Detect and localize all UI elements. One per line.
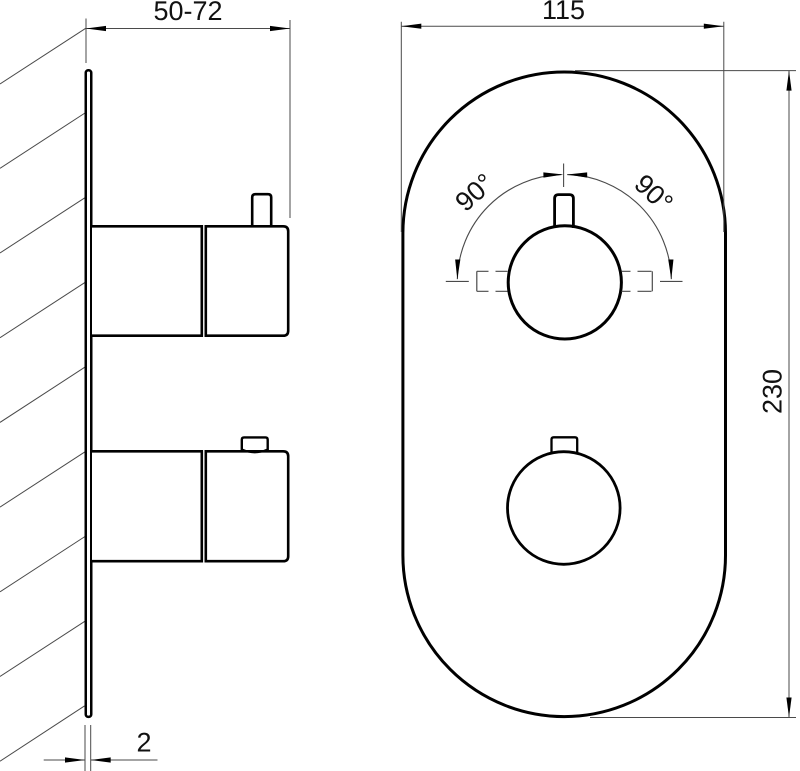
svg-text:115: 115	[542, 0, 585, 25]
svg-text:50-72: 50-72	[153, 0, 222, 26]
svg-text:2: 2	[136, 728, 151, 758]
svg-text:230: 230	[758, 369, 788, 414]
